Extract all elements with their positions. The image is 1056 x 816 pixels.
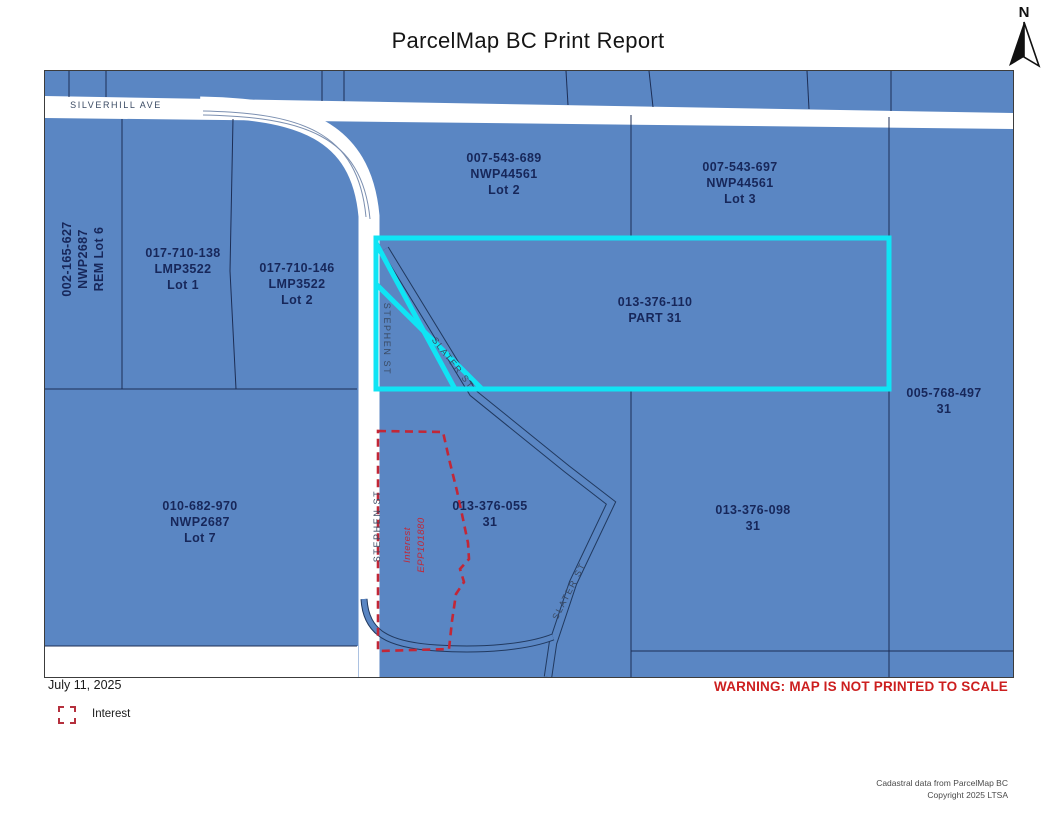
- parcel-pid: 017-710-146: [259, 260, 334, 276]
- north-arrow-icon: [1002, 20, 1046, 70]
- parcel-label-013-376-055: 013-376-055 31: [452, 498, 527, 530]
- parcel-label-013-376-110: 013-376-110 PART 31: [618, 294, 693, 326]
- parcel-plan: NWP2687: [162, 514, 237, 530]
- parcel-pid: 002-165-627: [59, 221, 75, 296]
- parcel-label-005-768-497: 005-768-497 31: [906, 385, 981, 417]
- parcel-lot: 31: [715, 518, 790, 534]
- parcel-plan: LMP3522: [259, 276, 334, 292]
- parcel-pid: 005-768-497: [906, 385, 981, 401]
- parcel-pid: 007-543-697: [702, 159, 777, 175]
- parcel-lot: PART 31: [618, 310, 693, 326]
- parcel-lot: Lot 3: [702, 191, 777, 207]
- parcel-pid: 017-710-138: [145, 245, 220, 261]
- credit-source: Cadastral data from ParcelMap BC: [876, 777, 1008, 789]
- report-date: July 11, 2025: [48, 678, 121, 692]
- map-white-margin: [45, 646, 358, 677]
- parcel-lot: Lot 2: [466, 182, 541, 198]
- parcel-plan: LMP3522: [145, 261, 220, 277]
- parcel-pid: 010-682-970: [162, 498, 237, 514]
- legend-interest-symbol: [58, 706, 76, 724]
- legend-interest-label: Interest: [92, 708, 130, 720]
- parcel-label-017-710-146: 017-710-146 LMP3522 Lot 2: [259, 260, 334, 308]
- parcel-pid: 013-376-055: [452, 498, 527, 514]
- parcel-label-010-682-970: 010-682-970 NWP2687 Lot 7: [162, 498, 237, 546]
- map-canvas: SILVERHILL AVE STEPHEN ST STEPHEN ST SLA…: [44, 70, 1014, 678]
- interest-annotation: Interest EPP101880: [401, 517, 430, 572]
- interest-annotation-label: Interest: [401, 517, 415, 572]
- parcel-pid: 007-543-689: [466, 150, 541, 166]
- street-label-stephen-st-upper: STEPHEN ST: [382, 303, 392, 376]
- parcel-lot: Lot 1: [145, 277, 220, 293]
- north-label: N: [1002, 5, 1046, 20]
- street-label-stephen-st-lower: STEPHEN ST: [372, 490, 382, 563]
- parcel-label-002-165-627: 002-165-627 NWP2687 REM Lot 6: [59, 221, 107, 296]
- parcel-lot: Lot 7: [162, 530, 237, 546]
- parcel-lot: REM Lot 6: [91, 221, 107, 296]
- parcel-pid: 013-376-110: [618, 294, 693, 310]
- parcel-label-007-543-689: 007-543-689 NWP44561 Lot 2: [466, 150, 541, 198]
- parcel-lot: Lot 2: [259, 292, 334, 308]
- parcel-label-007-543-697: 007-543-697 NWP44561 Lot 3: [702, 159, 777, 207]
- parcel-plan: NWP44561: [466, 166, 541, 182]
- parcel-label-013-376-098: 013-376-098 31: [715, 502, 790, 534]
- parcel-plan: NWP2687: [75, 221, 91, 296]
- parcel-lot: 31: [452, 514, 527, 530]
- page-title: ParcelMap BC Print Report: [0, 28, 1056, 54]
- interest-annotation-plan: EPP101880: [415, 517, 429, 572]
- copyright-credits: Cadastral data from ParcelMap BC Copyrig…: [876, 777, 1008, 802]
- credit-copyright: Copyright 2025 LTSA: [876, 789, 1008, 801]
- print-report-page: ParcelMap BC Print Report N: [0, 0, 1056, 816]
- parcel-plan: NWP44561: [702, 175, 777, 191]
- north-arrow: N: [1002, 5, 1046, 75]
- parcel-lot: 31: [906, 401, 981, 417]
- scale-warning: WARNING: MAP IS NOT PRINTED TO SCALE: [714, 679, 1008, 694]
- street-label-silverhill-ave: SILVERHILL AVE: [70, 100, 162, 110]
- parcel-label-017-710-138: 017-710-138 LMP3522 Lot 1: [145, 245, 220, 293]
- parcel-pid: 013-376-098: [715, 502, 790, 518]
